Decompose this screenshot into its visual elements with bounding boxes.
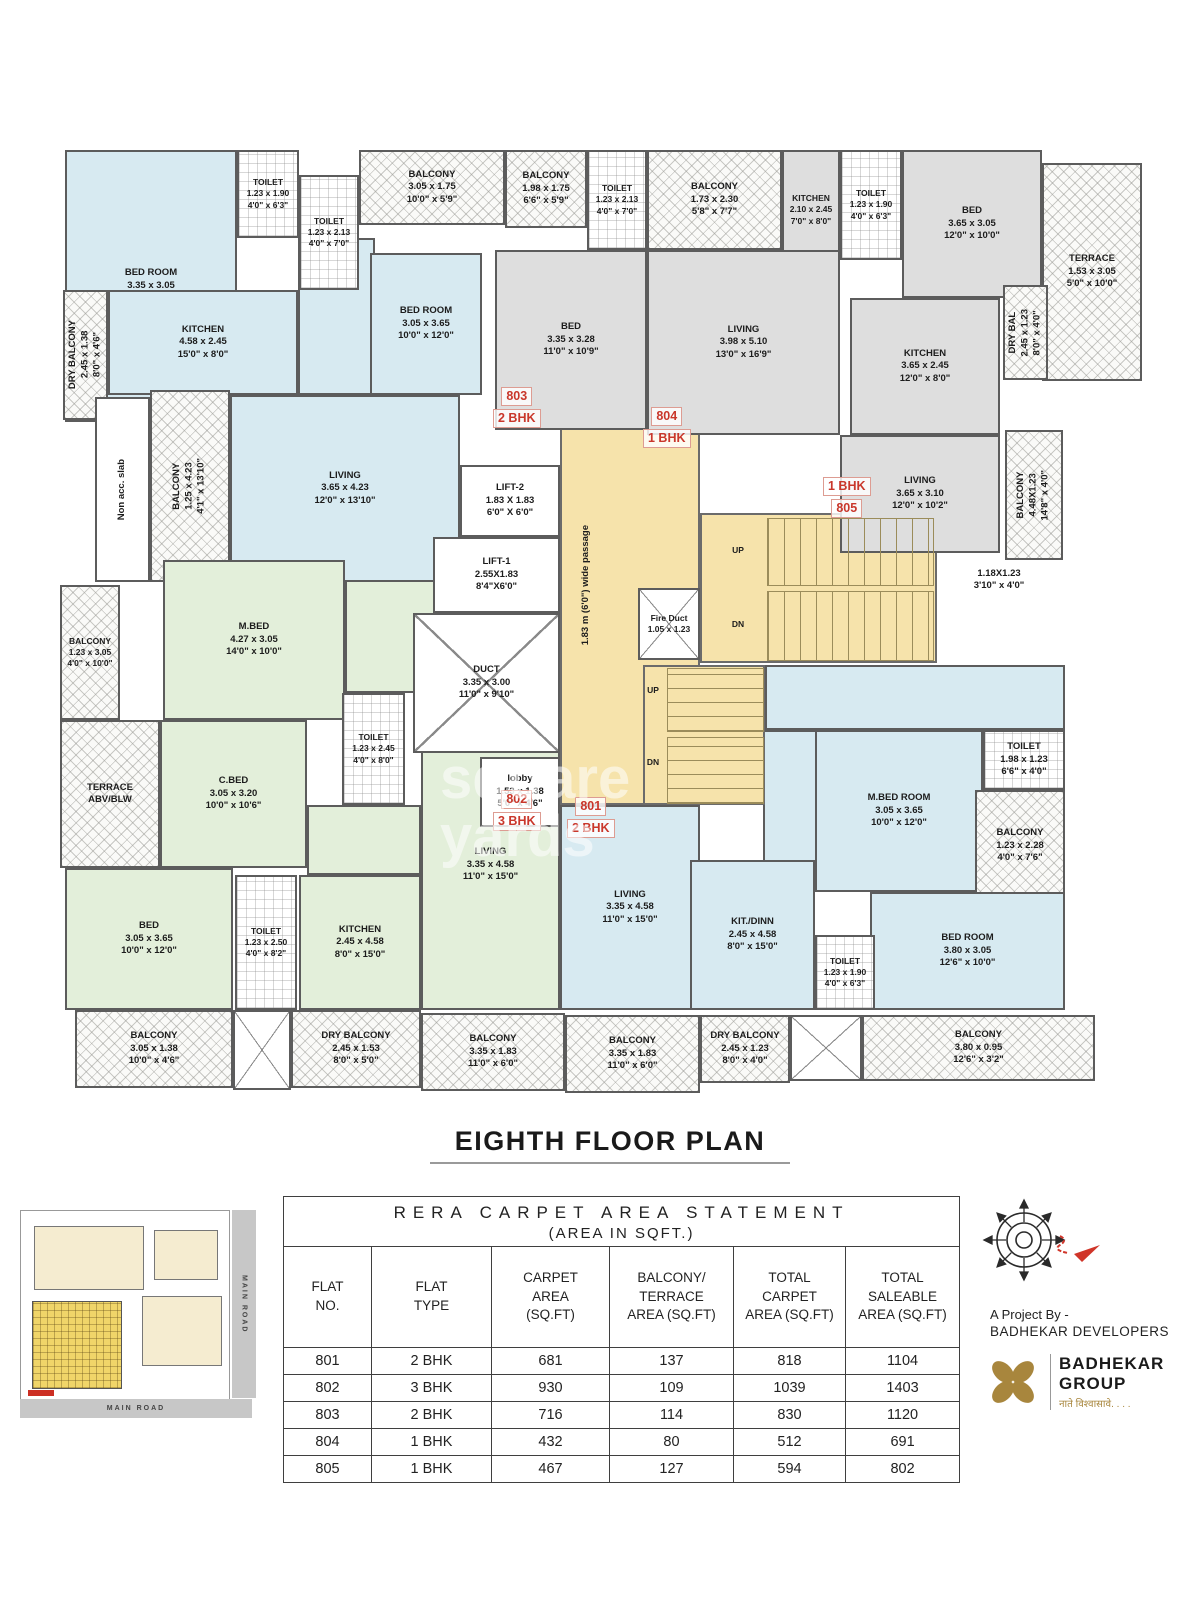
- duct-label: DUCT 3.35 x 3.00 11'0" x 9'10": [459, 664, 514, 701]
- room-803-kitchen-label: KITCHEN 4.58 x 2.45 15'0" x 8'0": [178, 324, 229, 361]
- flat-label-801-line: 801: [575, 797, 606, 816]
- column-header: BALCONY/ TERRACE AREA (SQ.FT): [610, 1247, 734, 1348]
- table-title: RERA CARPET AREA STATEMENT: [286, 1203, 957, 1223]
- room-803-toilet-2-label: TOILET 1.23 x 2.13 4'0" x 7'0": [308, 216, 351, 249]
- table-cell: 1120: [846, 1402, 960, 1429]
- fire-duct: Fire Duct 1.05 x 1.23: [638, 588, 700, 660]
- table-cell: 80: [610, 1429, 734, 1456]
- column-header: TOTAL SALEABLE AREA (SQ.FT): [846, 1247, 960, 1348]
- stairs-lower-up-label: UP: [639, 683, 667, 698]
- flat-label-804-line: 804: [651, 407, 682, 426]
- room-805-dry-balcony-label: DRY BAL 2.45 x 1.23 8'0" x 4'0": [1007, 309, 1044, 357]
- branding-section: A Project By - BADHEKAR DEVELOPERS BADHE…: [978, 1192, 1194, 1411]
- stairs-upper-dn-label: DN: [721, 617, 755, 633]
- room-803-bedroom-2: BED ROOM 3.05 x 3.65 10'0" x 12'0": [370, 253, 482, 395]
- non-acc-slab-label: Non acc. slab: [116, 459, 128, 520]
- flat-label-803-line: 2 BHK: [493, 409, 541, 428]
- room-802-kitchen-label: KITCHEN 2.45 x 4.58 8'0" x 15'0": [335, 924, 386, 961]
- room-804-toilet: TOILET 1.23 x 2.13 4'0" x 7'0": [587, 150, 647, 250]
- room-803-living: LIVING 3.65 x 4.23 12'0" x 13'10": [230, 395, 460, 582]
- table-cell: 109: [610, 1375, 734, 1402]
- flat-label-801-line: 2 BHK: [567, 819, 615, 838]
- room-805-terrace-label: TERRACE 1.53 x 3.05 5'0" x 10'0": [1067, 253, 1118, 290]
- table-cell: 691: [846, 1429, 960, 1456]
- table-cell: 467: [492, 1456, 610, 1483]
- passage-width-label-label: 1.83 m (6'0") wide passage: [580, 525, 592, 645]
- lift-1: LIFT-1 2.55X1.83 8'4"X6'0": [433, 537, 560, 613]
- non-acc-slab: Non acc. slab: [95, 397, 150, 582]
- stairs-lower-dn-label-label: DN: [647, 757, 659, 768]
- room-804-balcony-2: BALCONY 1.73 x 2.30 5'8" x 7'7": [647, 150, 782, 250]
- table-cell: 127: [610, 1456, 734, 1483]
- table-cell: 681: [492, 1348, 610, 1375]
- room-802-kitchen: KITCHEN 2.45 x 4.58 8'0" x 15'0": [299, 875, 421, 1010]
- flat-label-804: 8041 BHK: [643, 407, 691, 448]
- site-road-right: MAIN ROAD: [232, 1210, 256, 1398]
- room-805-kitchen: KITCHEN 3.65 x 2.45 12'0" x 8'0": [850, 298, 1000, 435]
- floor-plan-canvas: square yards BED ROOM 3.35 x 3.05 11'0" …: [55, 135, 1150, 1100]
- logo-divider: [1050, 1354, 1051, 1410]
- table-row: 8041 BHK43280512691: [284, 1429, 960, 1456]
- room-803-kitchen: KITCHEN 4.58 x 2.45 15'0" x 8'0": [108, 290, 298, 395]
- room-805-dry-balcony: DRY BAL 2.45 x 1.23 8'0" x 4'0": [1003, 285, 1048, 380]
- site-building-1: [34, 1226, 144, 1290]
- table-cell: 805: [284, 1456, 372, 1483]
- table-row: 8012 BHK6811378181104: [284, 1348, 960, 1375]
- fire-duct-label: Fire Duct 1.05 x 1.23: [648, 613, 691, 635]
- flat-label-805-line: 805: [831, 499, 862, 518]
- room-804-bed-label: BED 3.35 x 3.28 11'0" x 10'9": [543, 321, 598, 358]
- table-cell: 114: [610, 1402, 734, 1429]
- project-by-text: A Project By -: [990, 1307, 1194, 1322]
- table-cell: 512: [734, 1429, 846, 1456]
- table-cell: 1403: [846, 1375, 960, 1402]
- column-header: TOTAL CARPET AREA (SQ.FT): [734, 1247, 846, 1348]
- balcony-bottom-2: BALCONY 3.35 x 1.83 11'0" x 6'0": [421, 1013, 565, 1091]
- room-802-terrace: TERRACE ABV/BLW: [60, 720, 160, 868]
- room-805-terrace: TERRACE 1.53 x 3.05 5'0" x 10'0": [1042, 163, 1142, 381]
- table-cell: 2 BHK: [372, 1402, 492, 1429]
- stairs-upper-dn-label-label: DN: [732, 619, 744, 630]
- room-805-toilet-label: TOILET 1.23 x 1.90 4'0" x 6'3": [850, 188, 893, 221]
- balcony-bottom-3-label: BALCONY 3.35 x 1.83 11'0" x 6'0": [608, 1035, 658, 1072]
- room-801-balcony-label: BALCONY 1.23 x 2.28 4'0" x 7'6": [996, 827, 1044, 864]
- stairs-lower-flight-1: [667, 668, 764, 732]
- room-801-hall-area: [765, 665, 1065, 730]
- lift-2-label: LIFT-2 1.83 X 1.83 6'0" X 6'0": [486, 482, 535, 519]
- room-803-toilet-1-label: TOILET 1.23 x 1.90 4'0" x 6'3": [247, 177, 290, 210]
- room-803-toilet-1: TOILET 1.23 x 1.90 4'0" x 6'3": [237, 150, 299, 238]
- stairs-upper-flight-2: [767, 591, 934, 661]
- room-802-mbed-label: M.BED 4.27 x 3.05 14'0" x 10'0": [226, 621, 282, 658]
- balcony-bottom-4-label: BALCONY 3.80 x 0.95 12'6" x 3'2": [953, 1029, 1004, 1066]
- room-802-toilet-1-label: TOILET 1.23 x 2.45 4'0" x 8'0": [352, 732, 395, 765]
- flat-label-802-line: 802: [501, 790, 532, 809]
- terrace-dim-label: 1.18X1.23 3'10" x 4'0": [953, 563, 1045, 597]
- column-header: CARPET AREA (SQ.FT): [492, 1247, 610, 1348]
- table-cell: 1 BHK: [372, 1456, 492, 1483]
- rera-carpet-area-table: RERA CARPET AREA STATEMENT (AREA IN SQFT…: [283, 1196, 960, 1483]
- floor-plan-page: square yards BED ROOM 3.35 x 3.05 11'0" …: [0, 0, 1200, 1600]
- site-building-highlighted: [32, 1301, 122, 1389]
- site-building-2: [154, 1230, 218, 1280]
- brand-name: BADHEKAR: [1059, 1354, 1164, 1374]
- room-801-kitdinn-label: KIT./DINN 2.45 x 4.58 8'0" x 15'0": [727, 916, 778, 953]
- terrace-dim-label-label: 1.18X1.23 3'10" x 4'0": [974, 568, 1025, 593]
- table-cell: 432: [492, 1429, 610, 1456]
- room-803-balcony-top-label: BALCONY 3.05 x 1.75 10'0" x 5'9": [407, 169, 458, 206]
- table-row: 8023 BHK93010910391403: [284, 1375, 960, 1402]
- stairs-upper-flight-1: [767, 518, 934, 586]
- room-801-bedroom-label: BED ROOM 3.80 x 3.05 12'6" x 10'0": [940, 932, 996, 969]
- room-805-bed-label: BED 3.65 x 3.05 12'0" x 10'0": [944, 205, 1000, 242]
- lift-2: LIFT-2 1.83 X 1.83 6'0" X 6'0": [460, 465, 560, 537]
- table-cell: 716: [492, 1402, 610, 1429]
- balcony-bottom-1-label: BALCONY 3.05 x 1.38 10'0" x 4'6": [129, 1030, 180, 1067]
- dry-balcony-bottom-2: DRY BALCONY 2.45 x 1.23 8'0" x 4'0": [700, 1015, 790, 1083]
- room-805-living-label: LIVING 3.65 x 3.10 12'0" x 10'2": [892, 475, 948, 512]
- table-row: 8032 BHK7161148301120: [284, 1402, 960, 1429]
- developer-name: BADHEKAR DEVELOPERS: [990, 1324, 1194, 1339]
- site-road-bottom: MAIN ROAD: [20, 1399, 252, 1418]
- room-803-balcony-left: BALCONY 1.25 x 4.23 4'1" x 13'10": [150, 390, 230, 582]
- flat-label-804-line: 1 BHK: [643, 429, 691, 448]
- north-arrow-icon: [1074, 1245, 1100, 1262]
- table-cell: 802: [284, 1375, 372, 1402]
- brand-sub: GROUP: [1059, 1374, 1164, 1394]
- table-cell: 830: [734, 1402, 846, 1429]
- stairs-lower-flight-2: [667, 737, 764, 804]
- room-802-bed: BED 3.05 x 3.65 10'0" x 12'0": [65, 868, 233, 1010]
- stairs-upper-up-label-label: UP: [732, 545, 744, 556]
- room-801-toilet-1: TOILET 1.98 x 1.23 6'6" x 4'0": [983, 730, 1065, 790]
- column-header: FLAT NO.: [284, 1247, 372, 1348]
- flat-label-805: 1 BHK805: [823, 477, 871, 518]
- flat-label-802: 8023 BHK: [493, 790, 541, 831]
- table-cell: 818: [734, 1348, 846, 1375]
- room-802-balcony-left-label: BALCONY 1.23 x 3.05 4'0" x 10'0": [67, 636, 112, 669]
- flat-label-803: 8032 BHK: [493, 387, 541, 428]
- table-title-cell: RERA CARPET AREA STATEMENT (AREA IN SQFT…: [284, 1197, 960, 1247]
- room-804-balcony-2-label: BALCONY 1.73 x 2.30 5'8" x 7'7": [691, 181, 739, 218]
- balcony-bottom-1: BALCONY 3.05 x 1.38 10'0" x 4'6": [75, 1010, 233, 1088]
- room-805-balcony-label: BALCONY 4.48X1.23 14'8" x 4'0": [1015, 470, 1052, 521]
- table-header-row: FLAT NO.FLAT TYPECARPET AREA (SQ.FT)BALC…: [284, 1247, 960, 1348]
- brand-tagline: नाते विश्वासावे. . . .: [1059, 1396, 1164, 1410]
- site-red-marker: [28, 1390, 54, 1396]
- room-802-toilet-1: TOILET 1.23 x 2.45 4'0" x 8'0": [342, 693, 405, 805]
- room-802-living-label: LIVING 3.35 x 4.58 11'0" x 15'0": [463, 846, 518, 883]
- flat-label-805-line: 1 BHK: [823, 477, 871, 496]
- balcony-bottom-2-label: BALCONY 3.35 x 1.83 11'0" x 6'0": [468, 1033, 518, 1070]
- room-805-kitchen-label: KITCHEN 3.65 x 2.45 12'0" x 8'0": [900, 348, 951, 385]
- room-802-balcony-left: BALCONY 1.23 x 3.05 4'0" x 10'0": [60, 585, 120, 720]
- balcony-bottom-3: BALCONY 3.35 x 1.83 11'0" x 6'0": [565, 1015, 700, 1093]
- table-cell: 802: [846, 1456, 960, 1483]
- room-803-dry-balcony-label: DRY BALCONY 2.45 x 1.38 8'0" x 4'6": [67, 320, 104, 389]
- room-805-bed: BED 3.65 x 3.05 12'0" x 10'0": [902, 150, 1042, 298]
- room-803-balcony-left-label: BALCONY 1.25 x 4.23 4'1" x 13'10": [171, 458, 208, 514]
- room-801-dining-area: [763, 730, 817, 862]
- room-801-toilet-1-label: TOILET 1.98 x 1.23 6'6" x 4'0": [1000, 741, 1048, 778]
- compass-icon: [978, 1192, 1128, 1292]
- page-title: EIGHTH FLOOR PLAN: [430, 1126, 790, 1164]
- table-cell: 2 BHK: [372, 1348, 492, 1375]
- flat-label-803-line: 803: [501, 387, 532, 406]
- room-804-living-label: LIVING 3.98 x 5.10 13'0" x 16'9": [716, 324, 772, 361]
- room-802-toilet-2: TOILET 1.23 x 2.50 4'0" x 8'2": [235, 875, 297, 1010]
- stairs-upper-up-label: UP: [721, 543, 755, 559]
- dry-balcony-bottom-1: DRY BALCONY 2.45 x 1.53 8'0" x 5'0": [291, 1010, 421, 1088]
- room-803-balcony-top: BALCONY 3.05 x 1.75 10'0" x 5'9": [359, 150, 505, 225]
- table-cell: 804: [284, 1429, 372, 1456]
- service-box-1: [233, 1010, 291, 1090]
- table-cell: 801: [284, 1348, 372, 1375]
- room-802-bed-label: BED 3.05 x 3.65 10'0" x 12'0": [121, 920, 177, 957]
- stairs-lower-up-label-label: UP: [647, 685, 659, 696]
- table-cell: 1 BHK: [372, 1429, 492, 1456]
- table-row: 8051 BHK467127594802: [284, 1456, 960, 1483]
- room-801-toilet-2-label: TOILET 1.23 x 1.90 4'0" x 6'3": [824, 956, 867, 989]
- table-cell: 1039: [734, 1375, 846, 1402]
- dry-balcony-bottom-2-label: DRY BALCONY 2.45 x 1.23 8'0" x 4'0": [710, 1030, 779, 1067]
- room-802-cbed-label: C.BED 3.05 x 3.20 10'0" x 10'6": [206, 775, 262, 812]
- room-801-balcony: BALCONY 1.23 x 2.28 4'0" x 7'6": [975, 790, 1065, 902]
- badhekar-logo: BADHEKAR GROUP नाते विश्वासावे. . . .: [984, 1353, 1194, 1411]
- table-cell: 594: [734, 1456, 846, 1483]
- stairs-lower-dn-label: DN: [639, 755, 667, 770]
- room-801-kitdinn: KIT./DINN 2.45 x 4.58 8'0" x 15'0": [690, 860, 815, 1010]
- room-803-toilet-2: TOILET 1.23 x 2.13 4'0" x 7'0": [299, 175, 359, 290]
- room-803-living-label: LIVING 3.65 x 4.23 12'0" x 13'10": [314, 470, 375, 507]
- room-803-bedroom-2-label: BED ROOM 3.05 x 3.65 10'0" x 12'0": [398, 305, 454, 342]
- table-body: 8012 BHK68113781811048023 BHK93010910391…: [284, 1348, 960, 1483]
- rera-table-section: RERA CARPET AREA STATEMENT (AREA IN SQFT…: [283, 1196, 959, 1483]
- room-801-toilet-2: TOILET 1.23 x 1.90 4'0" x 6'3": [815, 935, 875, 1010]
- column-header: FLAT TYPE: [372, 1247, 492, 1348]
- room-802-passage-area: [307, 805, 421, 875]
- site-key-plan: MAIN ROAD MAIN ROAD: [14, 1206, 256, 1421]
- room-804-toilet-label: TOILET 1.23 x 2.13 4'0" x 7'0": [596, 183, 639, 216]
- dry-balcony-bottom-1-label: DRY BALCONY 2.45 x 1.53 8'0" x 5'0": [321, 1030, 390, 1067]
- room-804-balcony-1: BALCONY 1.98 x 1.75 6'6" x 5'9": [505, 150, 587, 228]
- room-801-mbed-label: M.BED ROOM 3.05 x 3.65 10'0" x 12'0": [868, 792, 931, 829]
- room-801-bedroom: BED ROOM 3.80 x 3.05 12'6" x 10'0": [870, 892, 1065, 1010]
- service-box-2: [790, 1015, 862, 1081]
- table-cell: 3 BHK: [372, 1375, 492, 1402]
- room-804-balcony-1-label: BALCONY 1.98 x 1.75 6'6" x 5'9": [522, 170, 570, 207]
- room-805-balcony: BALCONY 4.48X1.23 14'8" x 4'0": [1005, 430, 1063, 560]
- table-cell: 137: [610, 1348, 734, 1375]
- room-802-toilet-2-label: TOILET 1.23 x 2.50 4'0" x 8'2": [245, 926, 288, 959]
- lift-1-label: LIFT-1 2.55X1.83 8'4"X6'0": [475, 556, 518, 593]
- badhekar-flower-icon: [984, 1353, 1042, 1411]
- room-801-living-label: LIVING 3.35 x 4.58 11'0" x 15'0": [602, 889, 657, 926]
- site-building-3: [142, 1296, 222, 1366]
- table-cell: 930: [492, 1375, 610, 1402]
- room-802-terrace-label: TERRACE ABV/BLW: [87, 782, 133, 807]
- table-subtitle: (AREA IN SQFT.): [286, 1225, 957, 1242]
- duct: DUCT 3.35 x 3.00 11'0" x 9'10": [413, 613, 560, 753]
- flat-label-802-line: 3 BHK: [493, 812, 541, 831]
- table-cell: 1104: [846, 1348, 960, 1375]
- table-cell: 803: [284, 1402, 372, 1429]
- flat-label-801: 8012 BHK: [567, 797, 615, 838]
- room-801-mbed: M.BED ROOM 3.05 x 3.65 10'0" x 12'0": [815, 730, 983, 892]
- road-right-label: MAIN ROAD: [241, 1275, 248, 1333]
- room-804-kitchen-label: KITCHEN 2.10 x 2.45 7'0" x 8'0": [790, 193, 833, 226]
- balcony-bottom-4: BALCONY 3.80 x 0.95 12'6" x 3'2": [862, 1015, 1095, 1081]
- room-805-toilet: TOILET 1.23 x 1.90 4'0" x 6'3": [840, 150, 902, 260]
- road-bottom-label: MAIN ROAD: [107, 1405, 165, 1412]
- passage-width-label: 1.83 m (6'0") wide passage: [571, 425, 601, 745]
- room-802-cbed: C.BED 3.05 x 3.20 10'0" x 10'6": [160, 720, 307, 868]
- room-802-mbed: M.BED 4.27 x 3.05 14'0" x 10'0": [163, 560, 345, 720]
